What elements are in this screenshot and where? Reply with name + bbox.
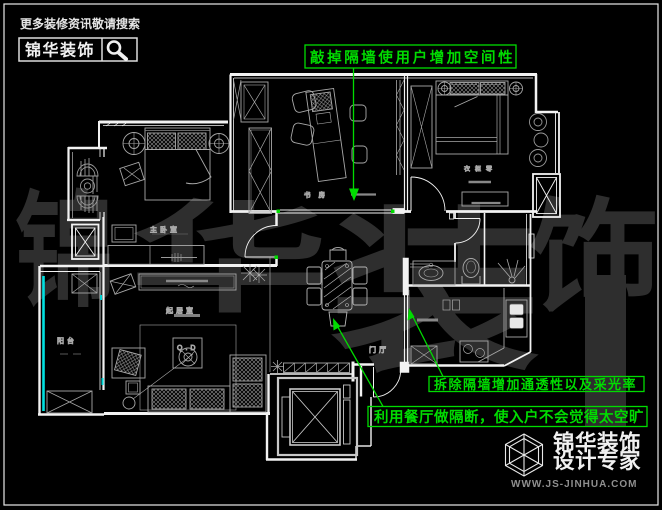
svg-text:利用餐厅做隔断，使入户不会觉得太空旷: 利用餐厅做隔断，使入户不会觉得太空旷 bbox=[374, 408, 644, 426]
svg-text:华: 华 bbox=[130, 194, 330, 327]
svg-text:衣柜零: 衣柜零 bbox=[464, 165, 497, 173]
svg-text:拆除隔墙增加通透性以及采光率: 拆除隔墙增加通透性以及采光率 bbox=[434, 377, 637, 392]
svg-text:阳台: 阳台 bbox=[57, 336, 77, 345]
svg-text:WWW.JS-JINHUA.COM: WWW.JS-JINHUA.COM bbox=[511, 479, 637, 490]
svg-text:Q.D: Q.D bbox=[177, 345, 198, 352]
svg-text:设计专家: 设计专家 bbox=[553, 448, 641, 473]
svg-text:起居室: 起居室 bbox=[166, 306, 196, 315]
svg-text:锦华装饰: 锦华装饰 bbox=[25, 41, 95, 60]
svg-text:门厅: 门厅 bbox=[369, 345, 389, 354]
svg-text:书房: 书房 bbox=[304, 190, 333, 199]
svg-text:主卧室: 主卧室 bbox=[150, 225, 180, 234]
svg-text:敲掉隔墙使用户增加空间性: 敲掉隔墙使用户增加空间性 bbox=[310, 49, 515, 67]
svg-text:更多装修资讯敬请搜索: 更多装修资讯敬请搜索 bbox=[20, 16, 140, 31]
